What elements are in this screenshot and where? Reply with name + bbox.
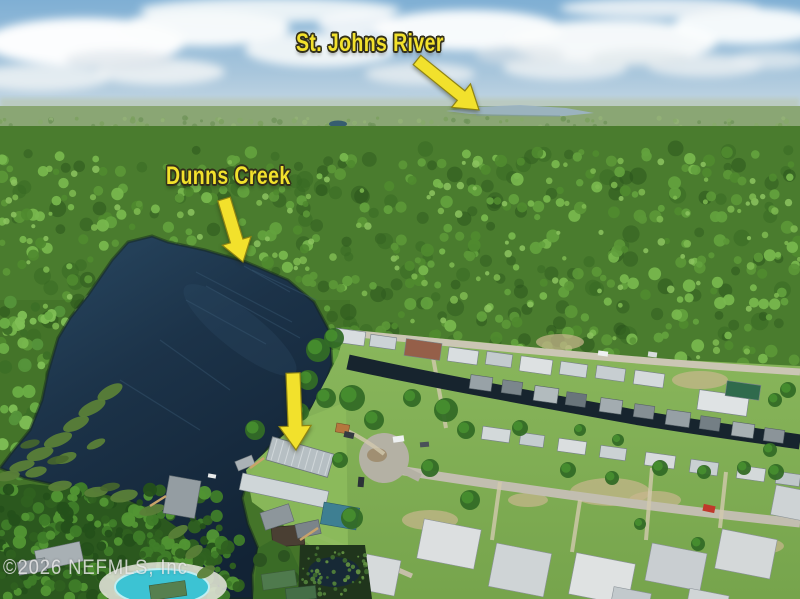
aerial-scene: [0, 0, 800, 599]
mls-watermark: ©2026 NEFMLS, Inc: [3, 556, 188, 579]
dunns-creek-label: Dunns Creek: [166, 164, 291, 189]
st-johns-river-label: St. Johns River: [296, 31, 444, 56]
aerial-listing-photo: St. Johns River Dunns Creek ©2026 NEFMLS…: [0, 0, 800, 599]
